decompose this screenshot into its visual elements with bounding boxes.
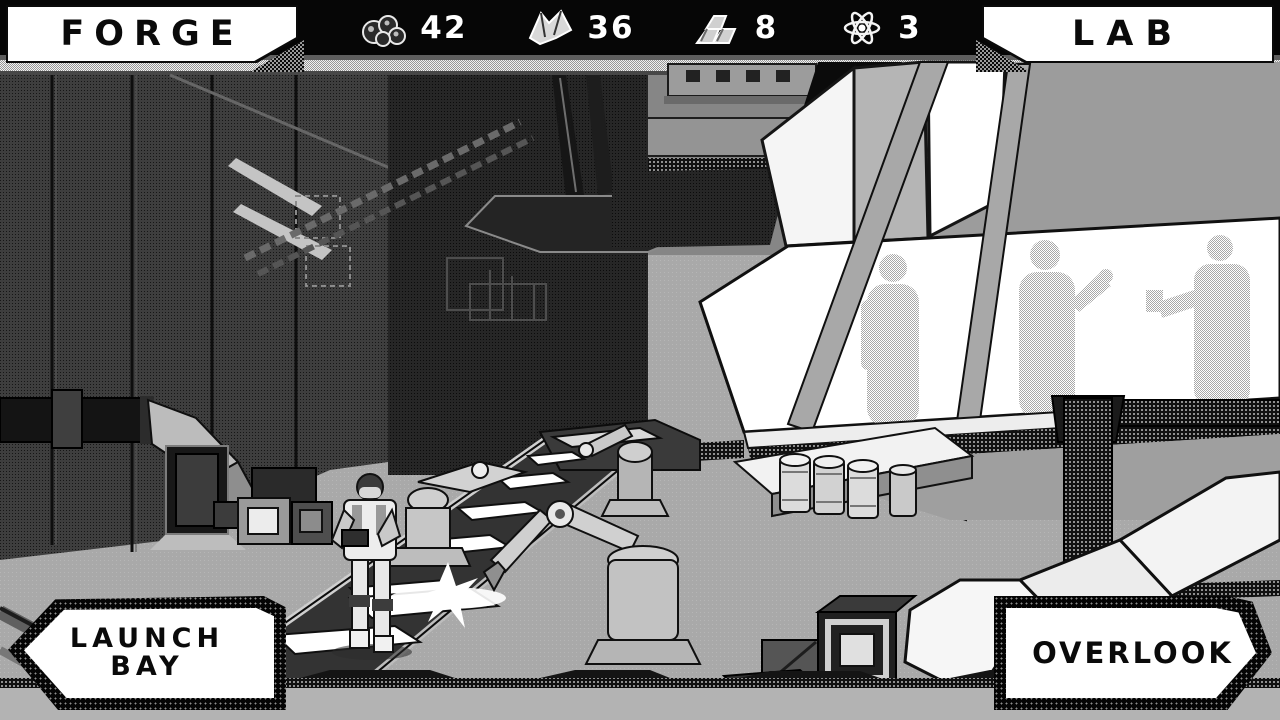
dark-ceiling-zone <box>612 168 790 248</box>
overlook-structure <box>700 62 1280 520</box>
crystal-icon <box>525 6 577 50</box>
launch-bay-button[interactable]: LAUNCH BAY <box>8 596 286 710</box>
resource-atom: 3 <box>836 6 922 50</box>
ingot-count: 8 <box>755 10 779 46</box>
forge-button[interactable]: FORGE <box>6 5 298 63</box>
launch-bay-label-line2: BAY <box>110 653 183 681</box>
atom-count: 3 <box>898 10 922 46</box>
vent-duct <box>664 64 820 104</box>
overlook-button-label: OVERLOOK <box>1032 636 1234 670</box>
forge-button-label: FORGE <box>60 14 243 54</box>
atom-icon <box>836 6 888 50</box>
resource-crystal: 36 <box>525 6 634 50</box>
ore-icon <box>358 6 410 50</box>
ingot-icon <box>693 6 745 50</box>
resource-ingot: 8 <box>693 6 779 50</box>
overlook-button[interactable]: OVERLOOK <box>994 596 1272 710</box>
game-screen: 42 36 8 3 <box>0 0 1280 720</box>
crystal-count: 36 <box>587 10 634 46</box>
launch-bay-label-line1: LAUNCH <box>70 625 224 653</box>
resource-ore: 42 <box>358 6 467 50</box>
ore-count: 42 <box>420 10 467 46</box>
lab-button[interactable]: LAB <box>982 5 1274 63</box>
lab-button-label: LAB <box>1072 14 1184 54</box>
